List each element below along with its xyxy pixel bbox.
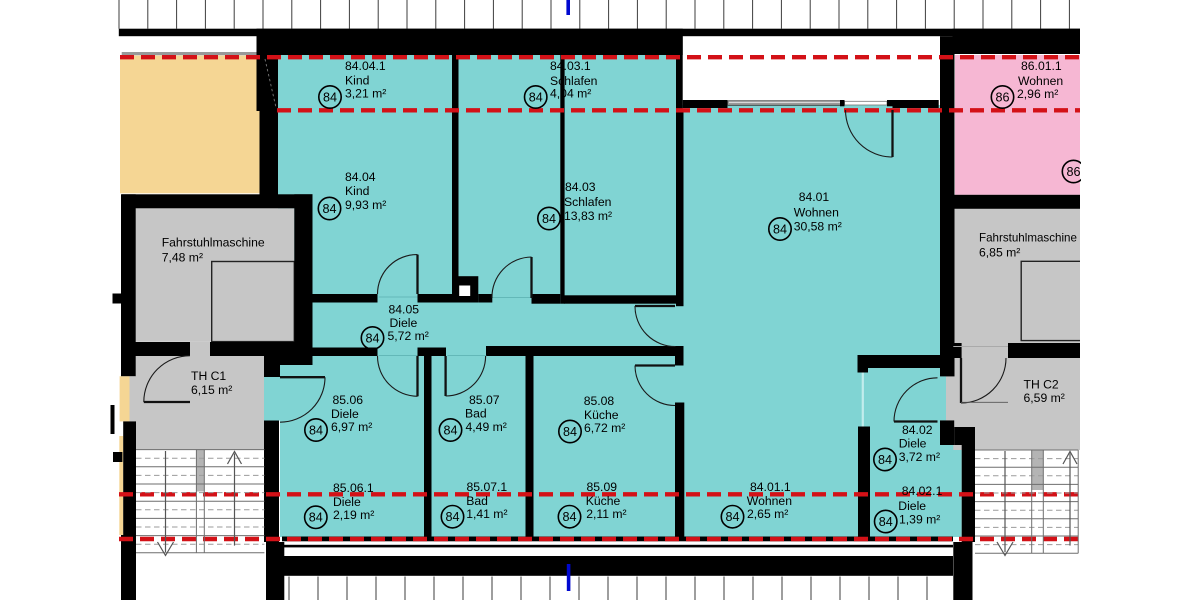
svg-text:84: 84 bbox=[879, 515, 893, 529]
svg-text:Bad: Bad bbox=[465, 407, 487, 421]
svg-text:Wohnen: Wohnen bbox=[794, 206, 839, 220]
svg-text:1,39 m²: 1,39 m² bbox=[899, 513, 940, 527]
svg-text:84: 84 bbox=[322, 202, 336, 216]
svg-text:84.05: 84.05 bbox=[389, 303, 420, 317]
svg-text:Diele: Diele bbox=[898, 499, 926, 513]
svg-text:TH C2: TH C2 bbox=[1024, 378, 1059, 392]
svg-text:6,85 m²: 6,85 m² bbox=[979, 246, 1020, 260]
svg-text:85.08: 85.08 bbox=[584, 394, 615, 408]
svg-text:2,96 m²: 2,96 m² bbox=[1017, 87, 1058, 101]
svg-text:85.07: 85.07 bbox=[469, 393, 500, 407]
svg-text:30,58 m²: 30,58 m² bbox=[794, 220, 842, 234]
svg-text:84: 84 bbox=[309, 511, 323, 525]
svg-text:86: 86 bbox=[995, 90, 1009, 104]
svg-text:Küche: Küche bbox=[586, 494, 621, 508]
svg-text:Wohnen: Wohnen bbox=[747, 494, 792, 508]
svg-text:86.01.1: 86.01.1 bbox=[1021, 59, 1062, 73]
svg-text:Kind: Kind bbox=[345, 74, 369, 88]
svg-text:Schlafen: Schlafen bbox=[564, 195, 611, 209]
svg-text:84: 84 bbox=[725, 510, 739, 524]
svg-text:5,72 m²: 5,72 m² bbox=[388, 329, 429, 343]
svg-text:3,72 m²: 3,72 m² bbox=[899, 450, 940, 464]
svg-text:Diele: Diele bbox=[899, 437, 927, 451]
svg-text:9,93 m²: 9,93 m² bbox=[345, 198, 386, 212]
svg-text:Wohnen: Wohnen bbox=[1018, 74, 1063, 88]
svg-text:Fahrstuhlmaschine: Fahrstuhlmaschine bbox=[979, 232, 1077, 245]
svg-text:84: 84 bbox=[529, 90, 543, 104]
svg-text:84: 84 bbox=[323, 90, 337, 104]
svg-text:85.06.1: 85.06.1 bbox=[333, 481, 374, 495]
svg-text:13,83 m²: 13,83 m² bbox=[564, 209, 612, 223]
svg-text:84: 84 bbox=[365, 331, 379, 345]
svg-text:85.09: 85.09 bbox=[587, 480, 618, 494]
svg-text:Fahrstuhlmaschine: Fahrstuhlmaschine bbox=[162, 236, 265, 250]
svg-text:84.04: 84.04 bbox=[345, 170, 376, 184]
svg-text:85.06: 85.06 bbox=[333, 393, 364, 407]
svg-text:Kind: Kind bbox=[345, 184, 369, 198]
svg-text:84.03.1: 84.03.1 bbox=[550, 59, 591, 73]
svg-text:4,04 m²: 4,04 m² bbox=[550, 87, 591, 101]
svg-text:2,11 m²: 2,11 m² bbox=[586, 507, 626, 521]
svg-text:6,72 m²: 6,72 m² bbox=[584, 421, 625, 435]
svg-text:84: 84 bbox=[445, 510, 459, 524]
svg-text:Küche: Küche bbox=[584, 408, 619, 422]
svg-text:86: 86 bbox=[1066, 165, 1080, 179]
svg-text:84.01.1: 84.01.1 bbox=[750, 480, 791, 494]
svg-text:Bad: Bad bbox=[466, 494, 488, 508]
svg-text:6,97 m²: 6,97 m² bbox=[331, 420, 372, 434]
svg-text:84: 84 bbox=[773, 222, 787, 236]
svg-text:84: 84 bbox=[542, 212, 556, 226]
svg-text:84: 84 bbox=[309, 423, 323, 437]
svg-text:84.02: 84.02 bbox=[902, 423, 933, 437]
svg-text:Diele: Diele bbox=[333, 495, 361, 509]
svg-text:85.07.1: 85.07.1 bbox=[467, 480, 508, 494]
svg-text:6,59 m²: 6,59 m² bbox=[1024, 391, 1065, 405]
svg-text:2,65 m²: 2,65 m² bbox=[747, 507, 788, 521]
svg-text:84.03: 84.03 bbox=[565, 180, 596, 194]
svg-text:84.02.1: 84.02.1 bbox=[902, 484, 943, 498]
svg-text:6,15 m²: 6,15 m² bbox=[191, 383, 232, 397]
svg-text:84.01: 84.01 bbox=[799, 190, 830, 204]
svg-text:3,21 m²: 3,21 m² bbox=[345, 87, 386, 101]
svg-text:84.04.1: 84.04.1 bbox=[345, 59, 386, 73]
svg-text:84: 84 bbox=[878, 453, 892, 467]
svg-text:2,19 m²: 2,19 m² bbox=[333, 508, 374, 522]
svg-text:Diele: Diele bbox=[331, 407, 359, 421]
svg-text:84: 84 bbox=[562, 510, 576, 524]
svg-text:84: 84 bbox=[563, 425, 577, 439]
svg-text:84: 84 bbox=[443, 423, 457, 437]
svg-text:Diele: Diele bbox=[390, 316, 418, 330]
svg-text:1,41 m²: 1,41 m² bbox=[466, 507, 507, 521]
svg-text:7,48 m²: 7,48 m² bbox=[162, 251, 203, 265]
svg-text:TH C1: TH C1 bbox=[191, 369, 226, 383]
svg-text:4,49 m²: 4,49 m² bbox=[466, 420, 507, 434]
